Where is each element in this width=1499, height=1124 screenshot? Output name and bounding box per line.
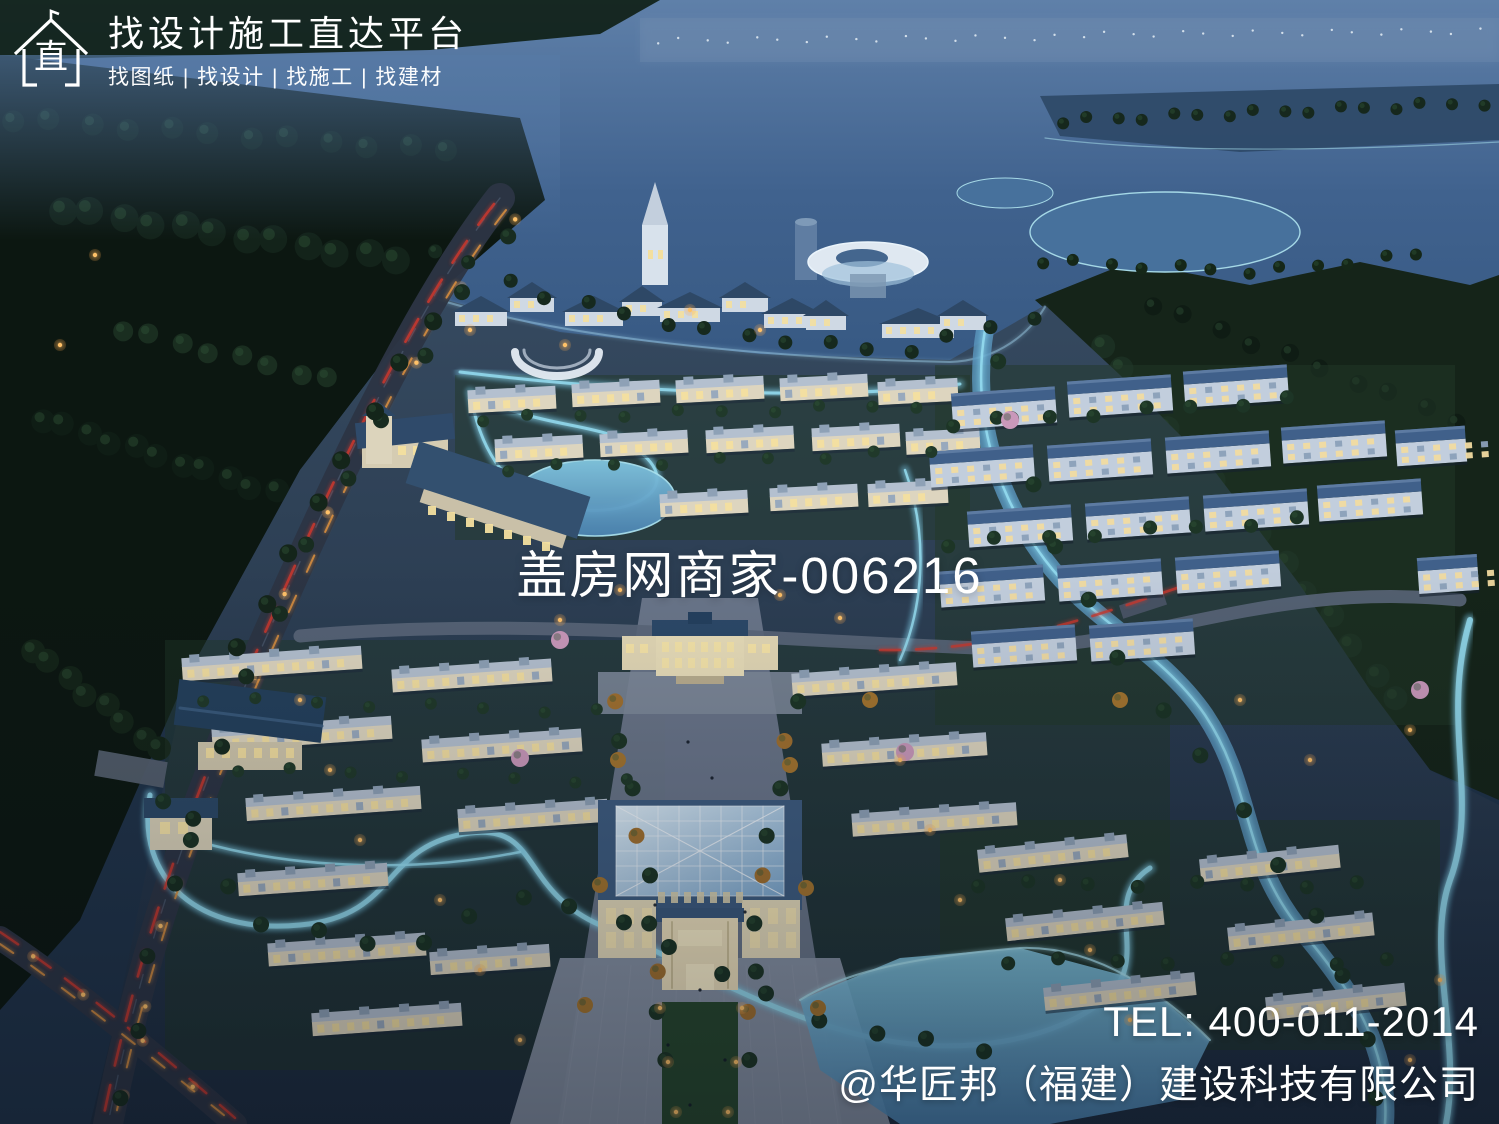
watermarked-aerial-rendering: 直 找设计施工直达平台 找图纸 | 找设计 | 找施工 | 找建材 盖房网商家-… [0, 0, 1499, 1124]
merchant-watermark: 盖房网商家-006216 [516, 534, 982, 608]
platform-title: 找设计施工直达平台 [108, 14, 468, 54]
contact-company: @华匠邦（福建）建设科技有限公司 [838, 1054, 1479, 1110]
contact-block: TEL: 400-011-2014 @华匠邦（福建）建设科技有限公司 [838, 998, 1479, 1110]
platform-text-block: 找设计施工直达平台 找图纸 | 找设计 | 找施工 | 找建材 [108, 8, 468, 91]
platform-services: 找图纸 | 找设计 | 找施工 | 找建材 [108, 61, 468, 91]
platform-logo: 直 找设计施工直达平台 找图纸 | 找设计 | 找施工 | 找建材 [10, 8, 468, 91]
house-logo-icon: 直 [10, 8, 92, 88]
contact-tel: TEL: 400-011-2014 [838, 998, 1479, 1046]
logo-glyph: 直 [34, 29, 68, 78]
